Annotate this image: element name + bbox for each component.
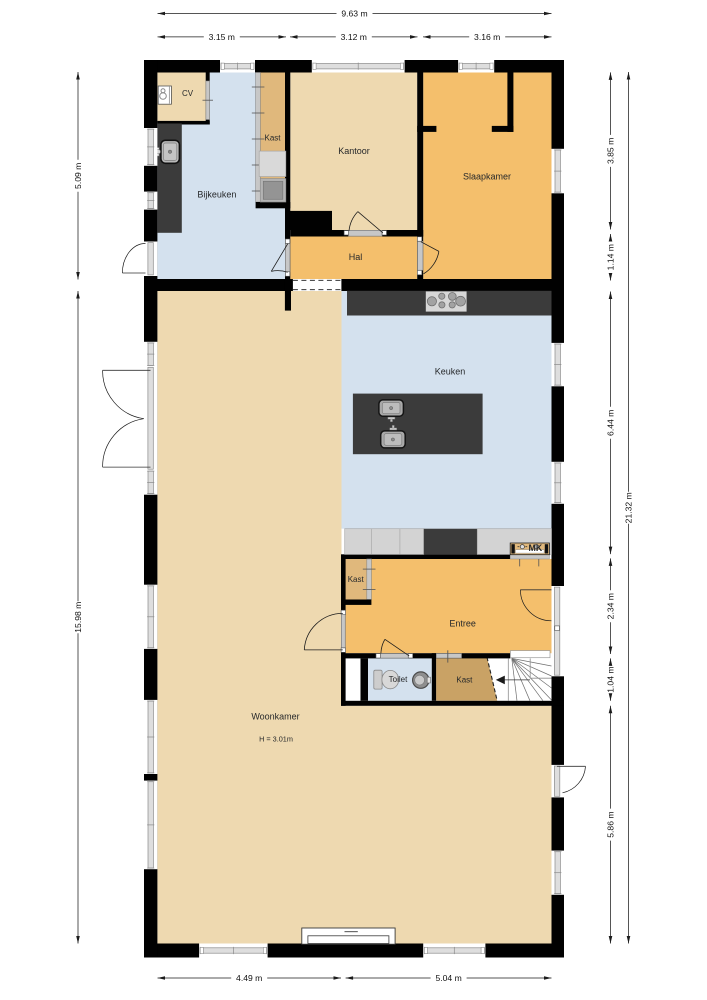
svg-text:Kast: Kast <box>456 675 473 684</box>
svg-text:Kantoor: Kantoor <box>338 146 370 156</box>
svg-text:Keuken: Keuken <box>435 366 466 376</box>
svg-text:4.49 m: 4.49 m <box>236 973 262 983</box>
svg-text:MK: MK <box>529 543 543 553</box>
svg-text:Kast: Kast <box>264 134 281 143</box>
svg-text:5.86 m: 5.86 m <box>606 811 616 837</box>
svg-text:6.44 m: 6.44 m <box>606 410 616 436</box>
svg-text:21.32 m: 21.32 m <box>624 492 634 523</box>
svg-text:3.85 m: 3.85 m <box>606 138 616 164</box>
svg-text:Toilet: Toilet <box>389 675 408 684</box>
svg-text:Hal: Hal <box>349 252 363 262</box>
svg-text:Slaapkamer: Slaapkamer <box>463 172 511 182</box>
svg-text:3.15 m: 3.15 m <box>209 32 235 42</box>
svg-text:3.16 m: 3.16 m <box>474 32 500 42</box>
svg-text:15.98 m: 15.98 m <box>73 602 83 633</box>
svg-text:2.34 m: 2.34 m <box>606 593 616 619</box>
svg-text:5.04 m: 5.04 m <box>435 973 461 983</box>
svg-text:9.63 m: 9.63 m <box>341 9 367 19</box>
svg-text:Bijkeuken: Bijkeuken <box>197 190 236 200</box>
svg-text:CV: CV <box>182 89 194 98</box>
svg-text:Kast: Kast <box>348 575 365 584</box>
svg-text:3.12 m: 3.12 m <box>341 32 367 42</box>
svg-text:H = 3.01m: H = 3.01m <box>259 734 293 743</box>
svg-text:1.14 m: 1.14 m <box>606 244 616 270</box>
svg-text:1.04 m: 1.04 m <box>606 666 616 692</box>
svg-text:Woonkamer: Woonkamer <box>251 712 299 722</box>
svg-text:5.09 m: 5.09 m <box>73 163 83 189</box>
svg-text:Entree: Entree <box>449 618 476 628</box>
